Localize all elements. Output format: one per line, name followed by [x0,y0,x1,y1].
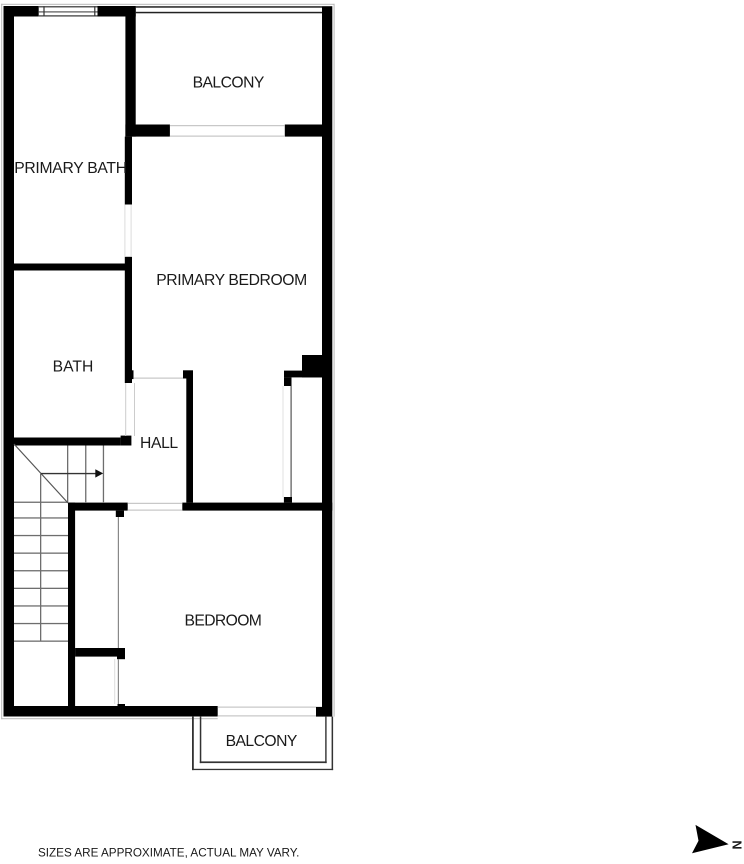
svg-text:SIZES ARE APPROXIMATE, ACTUAL: SIZES ARE APPROXIMATE, ACTUAL MAY VARY. [38,847,299,860]
svg-text:BATH: BATH [53,359,94,376]
svg-text:PRIMARY BATH: PRIMARY BATH [14,160,127,177]
svg-text:BALCONY: BALCONY [193,75,265,92]
svg-text:PRIMARY BEDROOM: PRIMARY BEDROOM [156,272,307,289]
svg-text:N: N [729,840,743,849]
svg-text:BEDROOM: BEDROOM [185,612,262,629]
svg-text:BALCONY: BALCONY [226,733,298,750]
svg-text:HALL: HALL [140,435,178,452]
